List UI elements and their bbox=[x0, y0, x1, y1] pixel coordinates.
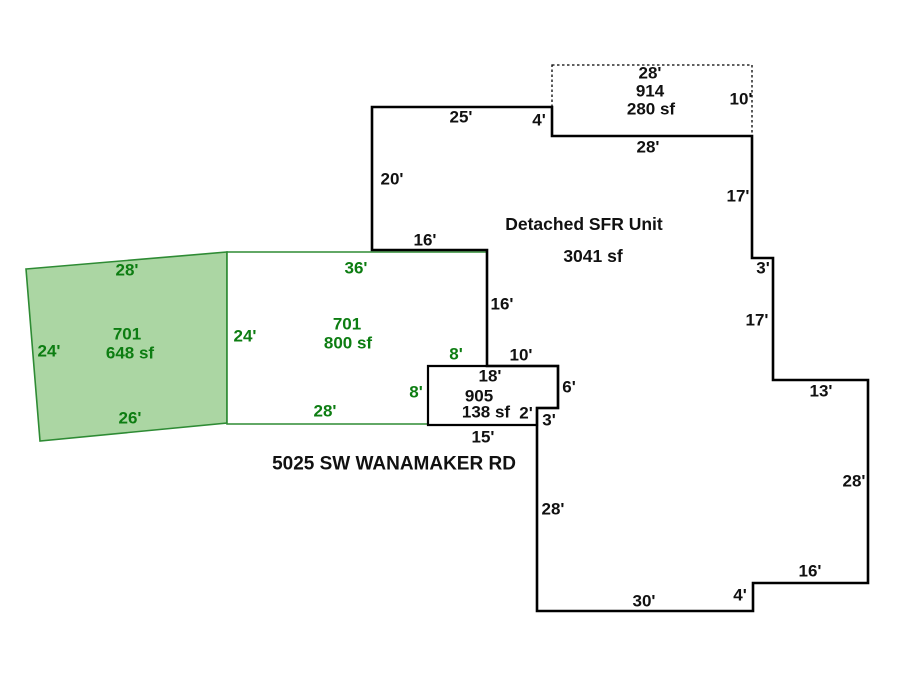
dim-sfr-bottom-30: 30' bbox=[633, 592, 656, 611]
dim-701b-top-36: 36' bbox=[345, 259, 368, 278]
dim-905-right-6: 6' bbox=[562, 378, 576, 397]
dim-914-right-10: 10' bbox=[730, 90, 753, 109]
dim-701b-bottom-28: 28' bbox=[314, 402, 337, 421]
unit-914-area: 280 sf bbox=[627, 100, 676, 119]
dim-sfr-bottom-16: 16' bbox=[799, 562, 822, 581]
dim-701b-step-top-8: 8' bbox=[449, 345, 463, 364]
unit-701a-area: 648 sf bbox=[106, 344, 155, 363]
dim-sfr-left-28: 28' bbox=[542, 500, 565, 519]
dim-905-top-18: 18' bbox=[479, 367, 502, 386]
address-label: 5025 SW WANAMAKER RD bbox=[272, 454, 516, 475]
dim-sfr-step-3: 3' bbox=[756, 259, 770, 278]
dim-sfr-inner-16: 16' bbox=[491, 295, 514, 314]
dim-905-step-3: 3' bbox=[542, 411, 556, 430]
dim-sfr-top-25: 25' bbox=[450, 108, 473, 127]
dim-sfr-right-17b: 17' bbox=[746, 311, 769, 330]
dim-sfr-left-20: 20' bbox=[381, 170, 404, 189]
dim-sfr-right-17a: 17' bbox=[727, 187, 750, 206]
dim-sfr-upper-28: 28' bbox=[637, 138, 660, 157]
unit-701b-area: 800 sf bbox=[324, 334, 373, 353]
unit-701b-id: 701 bbox=[333, 315, 361, 334]
unit-905-area: 138 sf bbox=[462, 403, 511, 422]
unit-sfr-area: 3041 sf bbox=[563, 246, 623, 266]
dim-914-top-28: 28' bbox=[639, 64, 662, 83]
dim-sfr-right-28: 28' bbox=[843, 472, 866, 491]
sketch-shapes-group bbox=[26, 65, 868, 611]
dim-701a-bottom-26: 26' bbox=[119, 409, 142, 428]
dim-sfr-bottom-4: 4' bbox=[733, 586, 747, 605]
dim-sfr-notch-16: 16' bbox=[414, 231, 437, 250]
dim-905-top-10: 10' bbox=[510, 346, 533, 365]
sketch-svg: 28'24'701648 sf26'24'36'701800 sf8'8'28'… bbox=[0, 0, 900, 675]
dim-905-step-2: 2' bbox=[519, 404, 533, 423]
dim-701a-left-24: 24' bbox=[38, 342, 61, 361]
dim-905-bottom-15: 15' bbox=[472, 428, 495, 447]
property-sketch-page: 28'24'701648 sf26'24'36'701800 sf8'8'28'… bbox=[0, 0, 900, 675]
dim-sfr-mid-13: 13' bbox=[810, 382, 833, 401]
dim-701a-top-28: 28' bbox=[116, 261, 139, 280]
dim-sfr-step-4: 4' bbox=[532, 111, 546, 130]
unit-sfr-name: Detached SFR Unit bbox=[505, 214, 663, 234]
unit-701a-id: 701 bbox=[113, 325, 141, 344]
unit-914-id: 914 bbox=[636, 82, 665, 101]
dim-701b-step-side-8: 8' bbox=[409, 383, 423, 402]
dim-701b-left-24: 24' bbox=[234, 327, 257, 346]
